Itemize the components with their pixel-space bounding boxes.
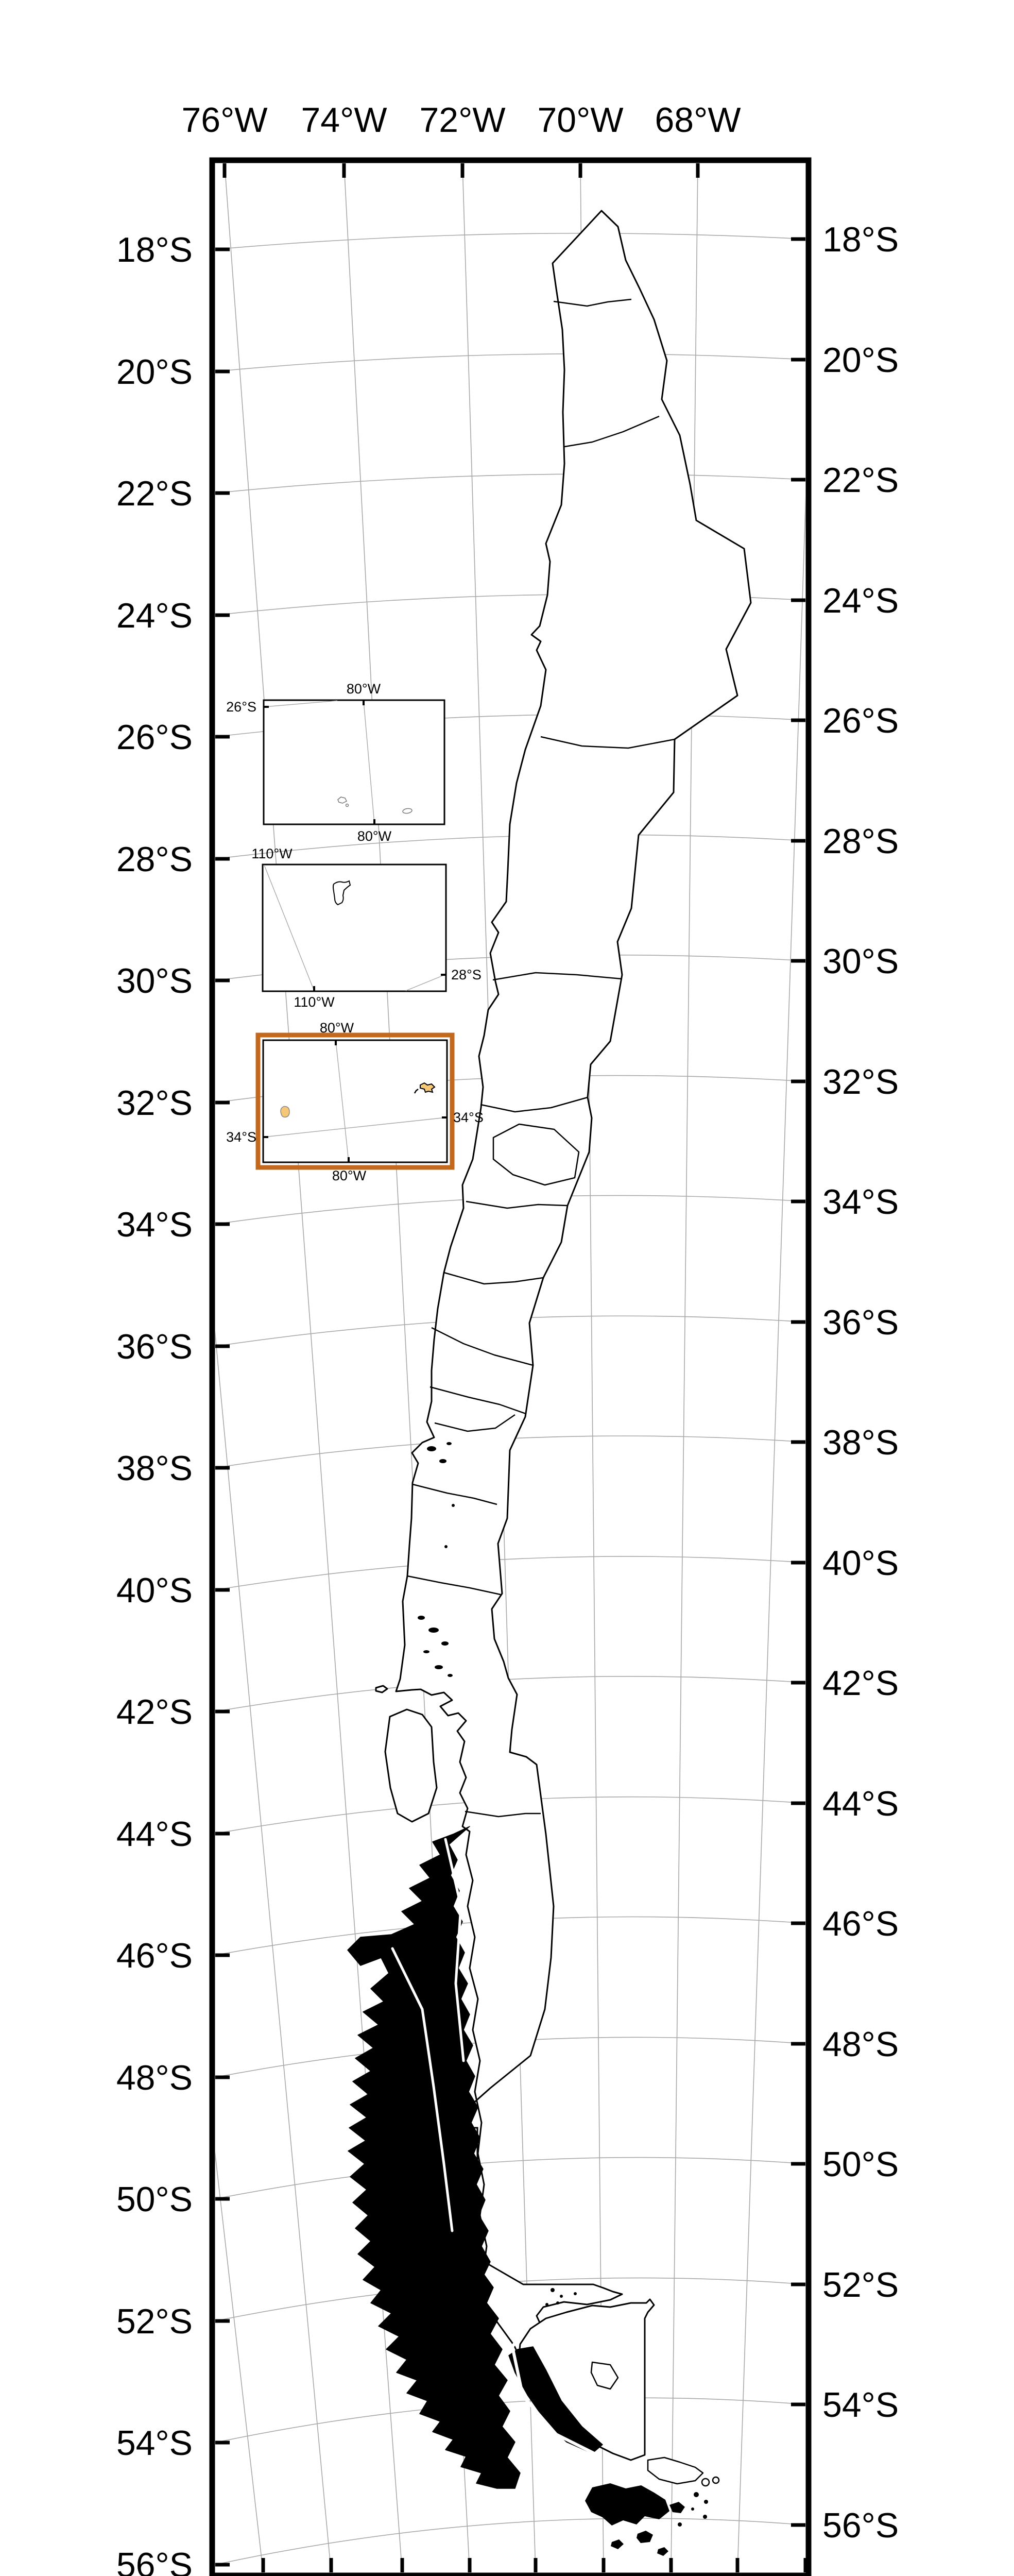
inset-label: 80°W [357,828,392,844]
left-axis-label: 18°S [116,230,193,269]
right-axis-label: 46°S [822,1904,899,1943]
right-axis-label: 40°S [822,1544,899,1583]
inset-label: 110°W [251,846,293,861]
left-axis-label: 24°S [116,596,193,635]
juan-fernandez-inset: 80°W80°W34°S34°S [226,1020,484,1183]
right-axis-label: 26°S [822,701,899,740]
left-axis-label: 20°S [116,352,193,392]
meridian-gridline [805,163,936,2572]
inset-label: 34°S [453,1110,484,1125]
top-axis-label: 70°W [537,100,623,140]
chile-map-svg: 76°W74°W72°W70°W68°W80°W76°W72°W68°W64°W… [0,0,1014,2576]
easter-island-inset: 110°W110°W28°S [251,846,482,1010]
left-axis-label: 50°S [116,2180,193,2219]
right-axis-label: 28°S [822,822,899,861]
inset-easter-island: 110°W110°W28°S [251,846,482,1010]
navarino-island [648,2458,703,2484]
map-figure: 76°W74°W72°W70°W68°W80°W76°W72°W68°W64°W… [0,0,1014,2576]
parallel-gridline [215,2518,805,2565]
chile-land [348,211,751,2556]
islet [713,2477,719,2483]
left-axis-label: 48°S [116,2058,193,2097]
right-axis-label: 50°S [822,2145,899,2184]
parallel-gridline [215,1556,805,1590]
inset-label: 80°W [320,1020,354,1036]
right-axis-label: 32°S [822,1062,899,1101]
right-axis-label: 22°S [822,461,899,500]
top-axis-label: 76°W [181,100,267,140]
right-axis-label: 48°S [822,2025,899,2064]
left-axis-label: 46°S [116,1936,193,1975]
meridian-gridline [737,163,817,2572]
inset-box [263,1040,447,1162]
right-axis-label: 36°S [822,1303,899,1342]
left-axis-label: 44°S [116,1815,193,1854]
parallel-gridline [215,233,805,249]
left-axis-label: 38°S [116,1449,193,1488]
right-axis-label: 42°S [822,1664,899,1703]
right-axis-label: 56°S [822,2506,899,2545]
inset-desventuradas: 80°W26°S80°W [226,681,444,844]
right-axis-label: 38°S [822,1423,899,1462]
inset-label: 80°W [347,681,381,697]
islet [702,2479,709,2486]
left-axis-label: 32°S [116,1083,193,1123]
top-axis-label: 74°W [301,100,387,140]
left-axis-label: 54°S [116,2424,193,2463]
alejandro-selkirk-island [281,1107,289,1117]
inset-juan-fernandez: 80°W80°W34°S34°S [226,1020,484,1183]
right-axis-label: 44°S [822,1784,899,1823]
inset-box [264,700,444,824]
right-axis-label: 30°S [822,942,899,981]
left-axis-label: 34°S [116,1205,193,1244]
left-axis-label: 56°S [116,2546,193,2576]
left-axis-label: 52°S [116,2302,193,2341]
right-axis-label: 54°S [822,2385,899,2425]
inset-label: 80°W [332,1168,367,1183]
left-axis-label: 36°S [116,1327,193,1366]
left-axis-label: 40°S [116,1571,193,1610]
right-axis-label: 34°S [822,1182,899,1222]
left-axis-label: 22°S [116,474,193,513]
right-axis-label: 52°S [822,2265,899,2304]
inset-label: 28°S [451,967,482,982]
right-axis-label: 18°S [822,220,899,259]
small-island [376,1686,387,1692]
parallel-gridline [215,474,805,493]
chiloe-island [385,1709,437,1822]
left-axis-label: 26°S [116,718,193,757]
right-axis-label: 20°S [822,341,899,380]
top-axis-label: 68°W [655,100,741,140]
inset-label: 34°S [226,1129,256,1145]
top-axis-label: 72°W [419,100,505,140]
inset-label: 110°W [294,994,335,1010]
parallel-gridline [215,354,805,371]
left-axis-label: 28°S [116,840,193,879]
inset-box [263,865,446,991]
left-axis-label: 42°S [116,1692,193,1732]
right-axis-label: 24°S [822,581,899,620]
inset-label: 26°S [226,699,256,715]
left-axis-label: 30°S [116,961,193,1001]
parallel-gridline [215,2158,805,2199]
desventuradas-islands-inset: 80°W26°S80°W [226,681,444,844]
